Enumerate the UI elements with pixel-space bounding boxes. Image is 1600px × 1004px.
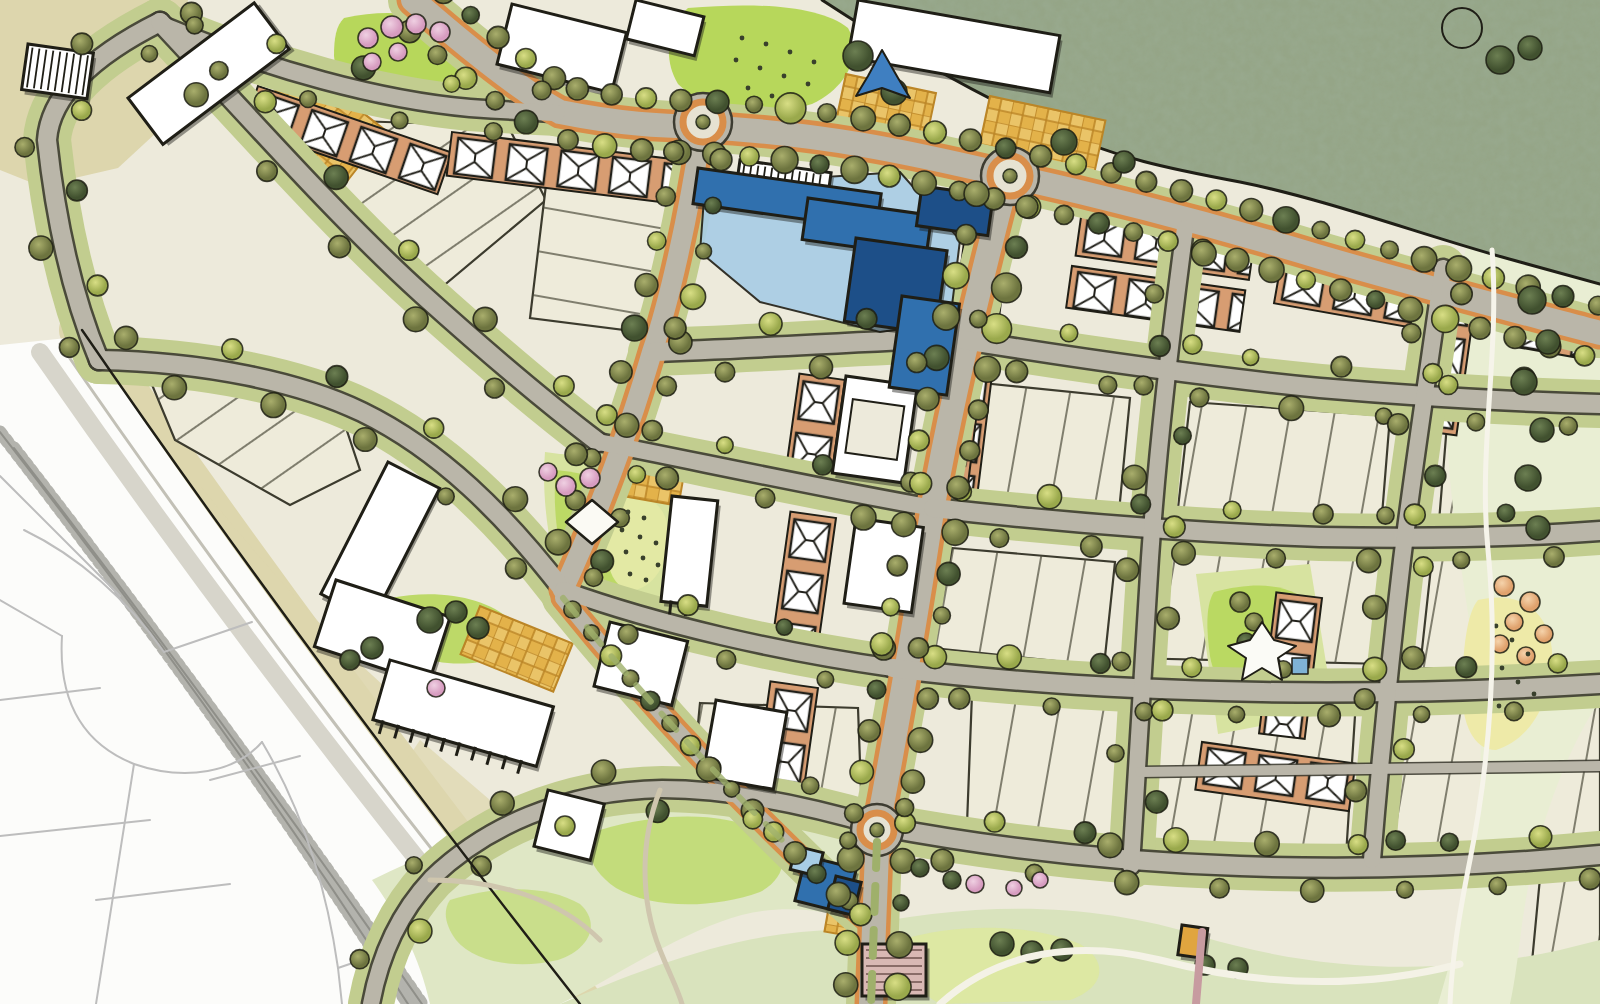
- site-plan-stage: [0, 0, 1600, 1004]
- site-plan-map: [0, 0, 1600, 1004]
